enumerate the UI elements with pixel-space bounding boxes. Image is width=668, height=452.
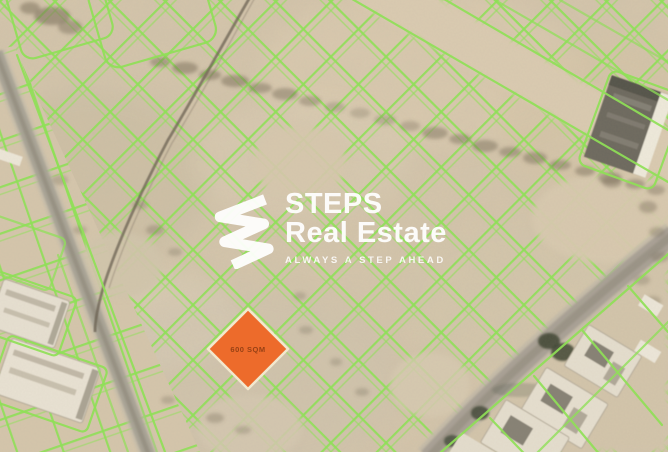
- image-grain: [0, 0, 668, 452]
- highlighted-plot-label: 600 SQM: [230, 345, 265, 354]
- listing-map-image: 600 SQM STEPS Real Estate ALWAYS A STEP …: [0, 0, 668, 452]
- satellite-map: 600 SQM: [0, 0, 668, 452]
